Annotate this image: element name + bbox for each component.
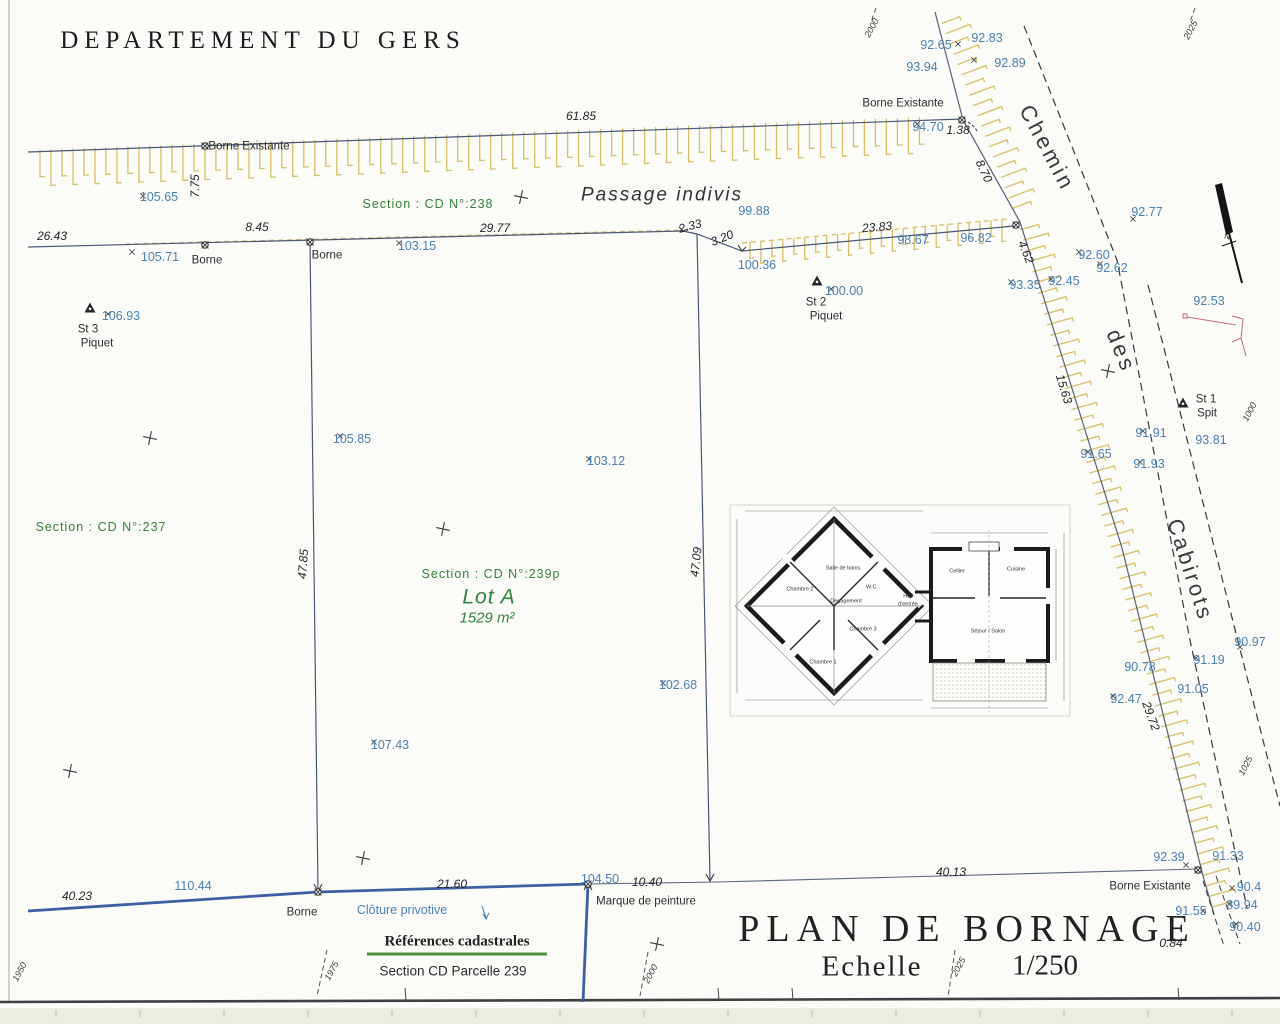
level-92-65: 92.65 — [920, 39, 951, 52]
borne-label-bottom: Borne — [287, 907, 318, 919]
level-91-05: 91.05 — [1177, 683, 1208, 696]
level-92-47: 92.47 — [1110, 693, 1141, 706]
section-237-label: Section : CD N°:237 — [36, 521, 167, 534]
station-2-label: St 2 — [806, 297, 826, 309]
room-sejour-salon: Séjour / Salon — [971, 629, 1006, 635]
level-92-62: 92.62 — [1096, 262, 1127, 275]
level-99-88: 99.88 — [738, 205, 769, 218]
scale-value: 1/250 — [1012, 950, 1078, 983]
borne-marker — [202, 242, 209, 249]
room-chambre-2: Chambre 2 — [786, 587, 813, 593]
dim-7-75: 7.75 — [189, 174, 201, 197]
level-93-35: 93.35 — [1009, 279, 1040, 292]
borne-marker — [1195, 867, 1202, 874]
level-103-12: 103.12 — [587, 455, 625, 468]
station-1-label: St 1 — [1196, 394, 1216, 406]
dim-47-85: 47.85 — [296, 549, 310, 580]
station-triangle-markers — [85, 276, 1189, 408]
level-91-65: 91.65 — [1080, 448, 1111, 461]
level-103-15: 103.15 — [398, 240, 436, 253]
dim-10-40: 10.40 — [632, 876, 662, 888]
station-1-type: Spit — [1197, 408, 1217, 420]
level-89-94: 89.94 — [1226, 899, 1257, 912]
south-boundary-east-segment — [588, 869, 1198, 884]
dim-21-60: 21.60 — [437, 878, 467, 890]
dim-40-23: 40.23 — [62, 890, 92, 902]
inset-floor-plan — [730, 505, 1070, 716]
cadastral-references-title: Références cadastrales — [384, 934, 529, 951]
cloture-label: Clôture privotive — [357, 904, 447, 917]
level-106-93: 106.93 — [102, 310, 140, 323]
room-hall: Hall — [903, 594, 912, 600]
section-238-label: Section : CD N°:238 — [363, 198, 494, 211]
lot-a-area: 1529 m² — [459, 611, 514, 626]
level-98-67: 98.67 — [897, 234, 928, 247]
level-91-55: 91.55 — [1175, 905, 1206, 918]
level-93-81: 93.81 — [1195, 434, 1226, 447]
pink-detail-marker — [1183, 314, 1246, 356]
scan-bottom-line — [0, 998, 1280, 1002]
level-105-65: 105.65 — [140, 191, 178, 204]
dim-29-77: 29.77 — [480, 222, 510, 234]
dim-40-13: 40.13 — [936, 866, 966, 878]
dim-61-85: 61.85 — [566, 110, 596, 122]
level-107-43: 107.43 — [371, 739, 409, 752]
level-90-4: 90.4 — [1237, 881, 1261, 894]
level-92-89: 92.89 — [994, 57, 1025, 70]
level-90-97: 90.97 — [1234, 636, 1265, 649]
level-92-39: 92.39 — [1153, 851, 1184, 864]
grid-dashed-line-east — [1148, 285, 1280, 806]
passage-indivis-label: Passage indivis — [581, 186, 743, 205]
room-degagement: Dégagement — [830, 599, 862, 605]
level-91-33: 91.33 — [1212, 850, 1243, 863]
level-92-77: 92.77 — [1131, 206, 1162, 219]
borne-marker — [307, 239, 314, 246]
room-cellier: Cellier — [949, 569, 965, 575]
level-100-36: 100.36 — [738, 259, 776, 272]
lot-a-west-boundary — [310, 242, 318, 891]
dim-8-45: 8.45 — [245, 221, 268, 233]
room-hall-entree: d'entrée — [898, 602, 918, 608]
survey-plan-canvas: DEPARTEMENT DU GERS PLAN DE BORNAGE Eche… — [0, 0, 1280, 1024]
scale-label: Echelle — [822, 951, 923, 984]
level-102-68: 102.68 — [659, 679, 697, 692]
level-91-91: 91.91 — [1135, 427, 1166, 440]
dim-1-38: 1.38 — [946, 124, 969, 136]
room-salle-de-bains: Salle de bains — [826, 566, 861, 572]
borne-existante-top-label: Borne Existante — [208, 141, 289, 153]
inset-terrace — [933, 663, 1046, 701]
level-110-44: 110.44 — [174, 880, 211, 893]
station-triangle — [1178, 398, 1189, 408]
level-92-83: 92.83 — [971, 32, 1002, 45]
room-chambre-3: Chambre 3 — [849, 627, 876, 633]
room-chambre-1: Chambre 1 — [809, 660, 836, 666]
borne-label-2: Borne — [312, 250, 343, 262]
scan-edges — [0, 0, 1280, 1024]
station-triangle — [85, 303, 96, 313]
station-3-type: Piquet — [81, 338, 114, 350]
room-cuisine: Cuisine — [1007, 567, 1025, 573]
road-west-edge — [935, 12, 1214, 914]
level-91-19: 91.19 — [1193, 654, 1224, 667]
section-239p-label: Section : CD N°:239p — [422, 568, 561, 581]
borne-marker — [202, 143, 209, 150]
plan-geometry — [0, 0, 1280, 1024]
level-105-71: 105.71 — [141, 251, 179, 264]
room-wc: W.C. — [866, 585, 878, 591]
north-boundary-line — [28, 119, 962, 152]
dim-0-84: 0.84 — [1159, 937, 1182, 949]
level-105-85: 105.85 — [333, 433, 371, 446]
lot-a-label: Lot A — [462, 587, 515, 608]
dim-47-09: 47.09 — [688, 546, 703, 577]
level-90-78: 90.78 — [1124, 661, 1155, 674]
level-100-00: 100.00 — [825, 285, 863, 298]
cadastral-references-value: Section CD Parcelle 239 — [379, 964, 526, 979]
level-91-93: 91.93 — [1133, 458, 1164, 471]
dim-23-83: 23.83 — [862, 220, 893, 235]
level-92-60: 92.60 — [1078, 249, 1109, 262]
paint-mark-label: Marque de peinture — [596, 896, 696, 908]
borne-existante-bottomright-label: Borne Existante — [1109, 881, 1190, 893]
station-triangle — [812, 276, 823, 286]
borne-marker — [315, 889, 322, 896]
level-94-70: 94.70 — [912, 121, 943, 134]
level-104-50: 104.50 — [581, 873, 619, 886]
level-90-40: 90.40 — [1229, 921, 1260, 934]
borne-marker — [1013, 222, 1020, 229]
level-92-45: 92.45 — [1048, 275, 1079, 288]
station-2-type: Piquet — [810, 311, 843, 323]
level-96-82: 96.82 — [960, 232, 991, 245]
level-92-53: 92.53 — [1193, 295, 1224, 308]
plan-title: PLAN DE BORNAGE — [738, 907, 1196, 951]
borne-existante-topright-label: Borne Existante — [862, 98, 943, 110]
dim-26-43: 26.43 — [37, 230, 67, 242]
borne-label-1: Borne — [192, 255, 223, 267]
station-3-label: St 3 — [78, 324, 98, 336]
level-93-94: 93.94 — [906, 61, 937, 74]
cadastral-references-underline — [367, 953, 547, 956]
department-title: DEPARTEMENT DU GERS — [60, 27, 466, 55]
